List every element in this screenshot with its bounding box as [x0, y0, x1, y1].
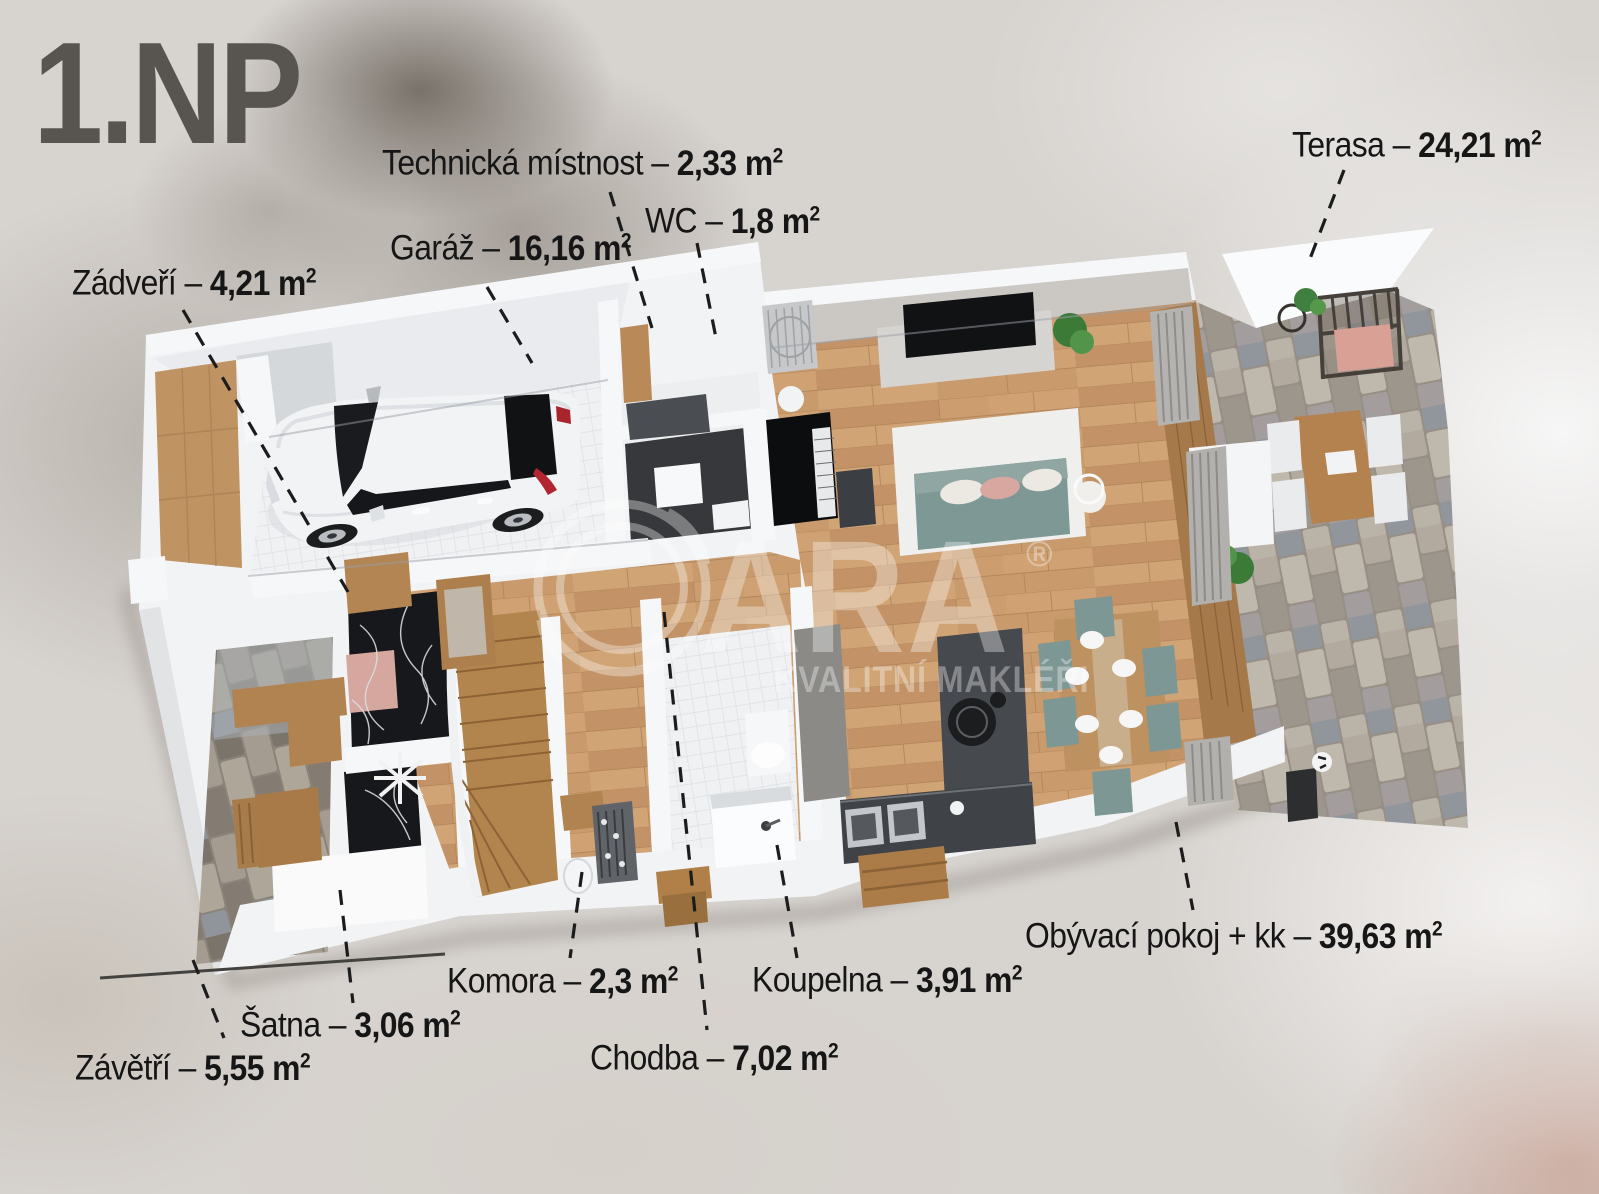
svg-text:®: ®	[1026, 533, 1053, 574]
svg-text:KVALITNÍ MAKLÉŘI: KVALITNÍ MAKLÉŘI	[774, 658, 1089, 701]
